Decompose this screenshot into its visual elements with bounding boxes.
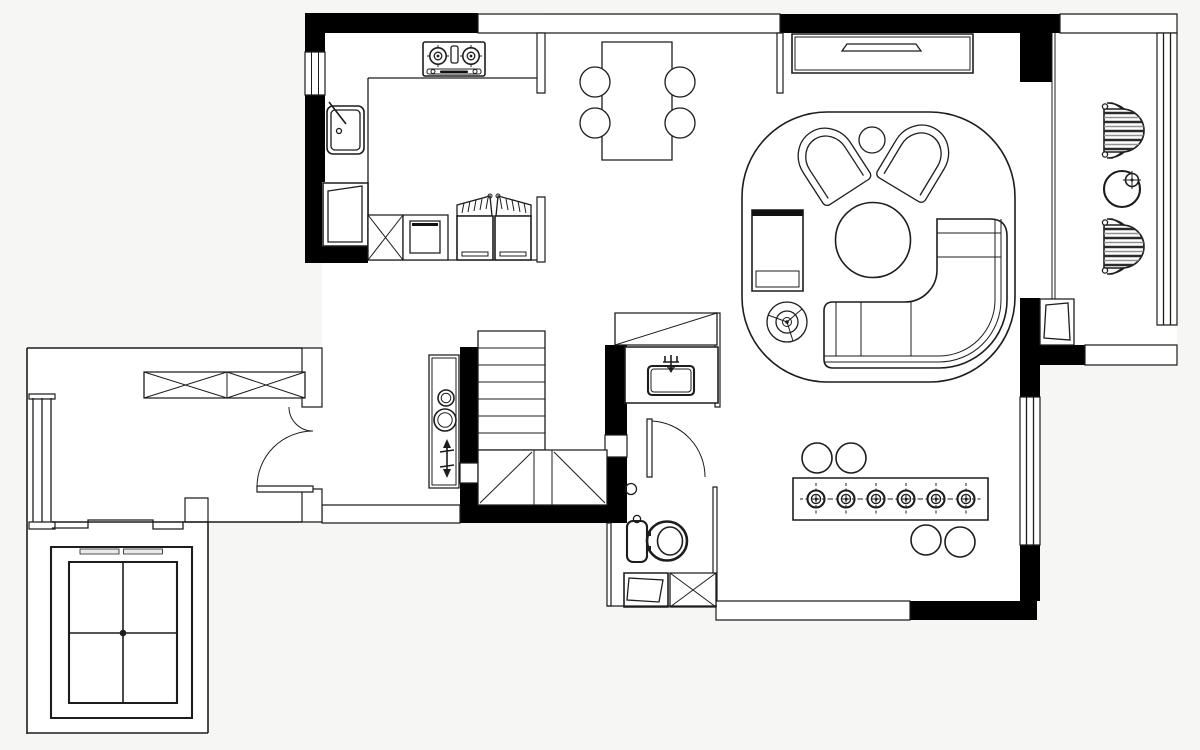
floor-plan-drawing	[0, 0, 1200, 750]
dining-chair	[665, 108, 695, 138]
entry-door-leaf	[257, 486, 313, 492]
balcony-window	[1157, 33, 1177, 325]
gas-cooktop	[423, 42, 485, 76]
elevator-door	[124, 549, 163, 554]
console-table	[429, 355, 459, 488]
dining-chair	[580, 108, 610, 138]
bar-room-window	[1020, 397, 1040, 545]
wall-balcony-corner	[1020, 298, 1040, 397]
wall-top-living	[780, 14, 1060, 33]
tv	[842, 44, 921, 51]
x-cabinet	[670, 573, 716, 607]
door-leaf	[647, 419, 652, 477]
ac-unit	[1040, 299, 1074, 345]
washing-machine	[624, 573, 668, 607]
bathroom-opening	[605, 435, 627, 457]
mirror-cabinet	[615, 313, 717, 345]
elevator	[51, 547, 192, 718]
wall-top-kitchen	[305, 13, 478, 33]
wall-pier	[185, 498, 208, 522]
dining-top-band	[478, 14, 780, 33]
x-storage-cabinet	[368, 215, 403, 260]
x-wardrobe	[144, 372, 305, 398]
round-side-table	[859, 127, 885, 153]
elevator-center-mark	[120, 630, 127, 637]
vanity-counter	[625, 347, 718, 403]
wall-stairs-bottom	[460, 505, 627, 523]
partition-dining-living	[777, 33, 783, 93]
wall-column	[1020, 33, 1052, 82]
tv-cabinet	[792, 34, 973, 73]
corridor-window	[29, 394, 55, 529]
bar-stool	[911, 525, 941, 555]
partition-kitchen-dining	[537, 33, 545, 93]
balcony-top-band	[1060, 14, 1177, 33]
dining-chair	[665, 67, 695, 97]
lounge-chaise	[752, 210, 803, 291]
bar-stool	[945, 527, 975, 557]
elevator-door	[80, 549, 119, 554]
tv-wall	[792, 34, 973, 73]
oven-unit	[403, 215, 448, 260]
floor-plan	[0, 0, 1200, 750]
round-tea-table	[1104, 171, 1141, 207]
dining-chair	[580, 67, 610, 97]
round-coffee-table	[836, 203, 911, 278]
wall-bathroom-left	[605, 345, 627, 435]
kitchen-window	[305, 52, 325, 95]
stair-landing	[478, 450, 607, 505]
wall-stairs-left	[460, 347, 478, 463]
tall-cabinet	[323, 183, 368, 246]
kitchen-sink	[327, 102, 364, 154]
stair-wall-niche	[460, 463, 478, 483]
bar-stool	[802, 443, 832, 473]
bar-stool	[836, 443, 866, 473]
dining-table	[602, 42, 672, 160]
wall-bar-bottom	[910, 601, 1037, 620]
